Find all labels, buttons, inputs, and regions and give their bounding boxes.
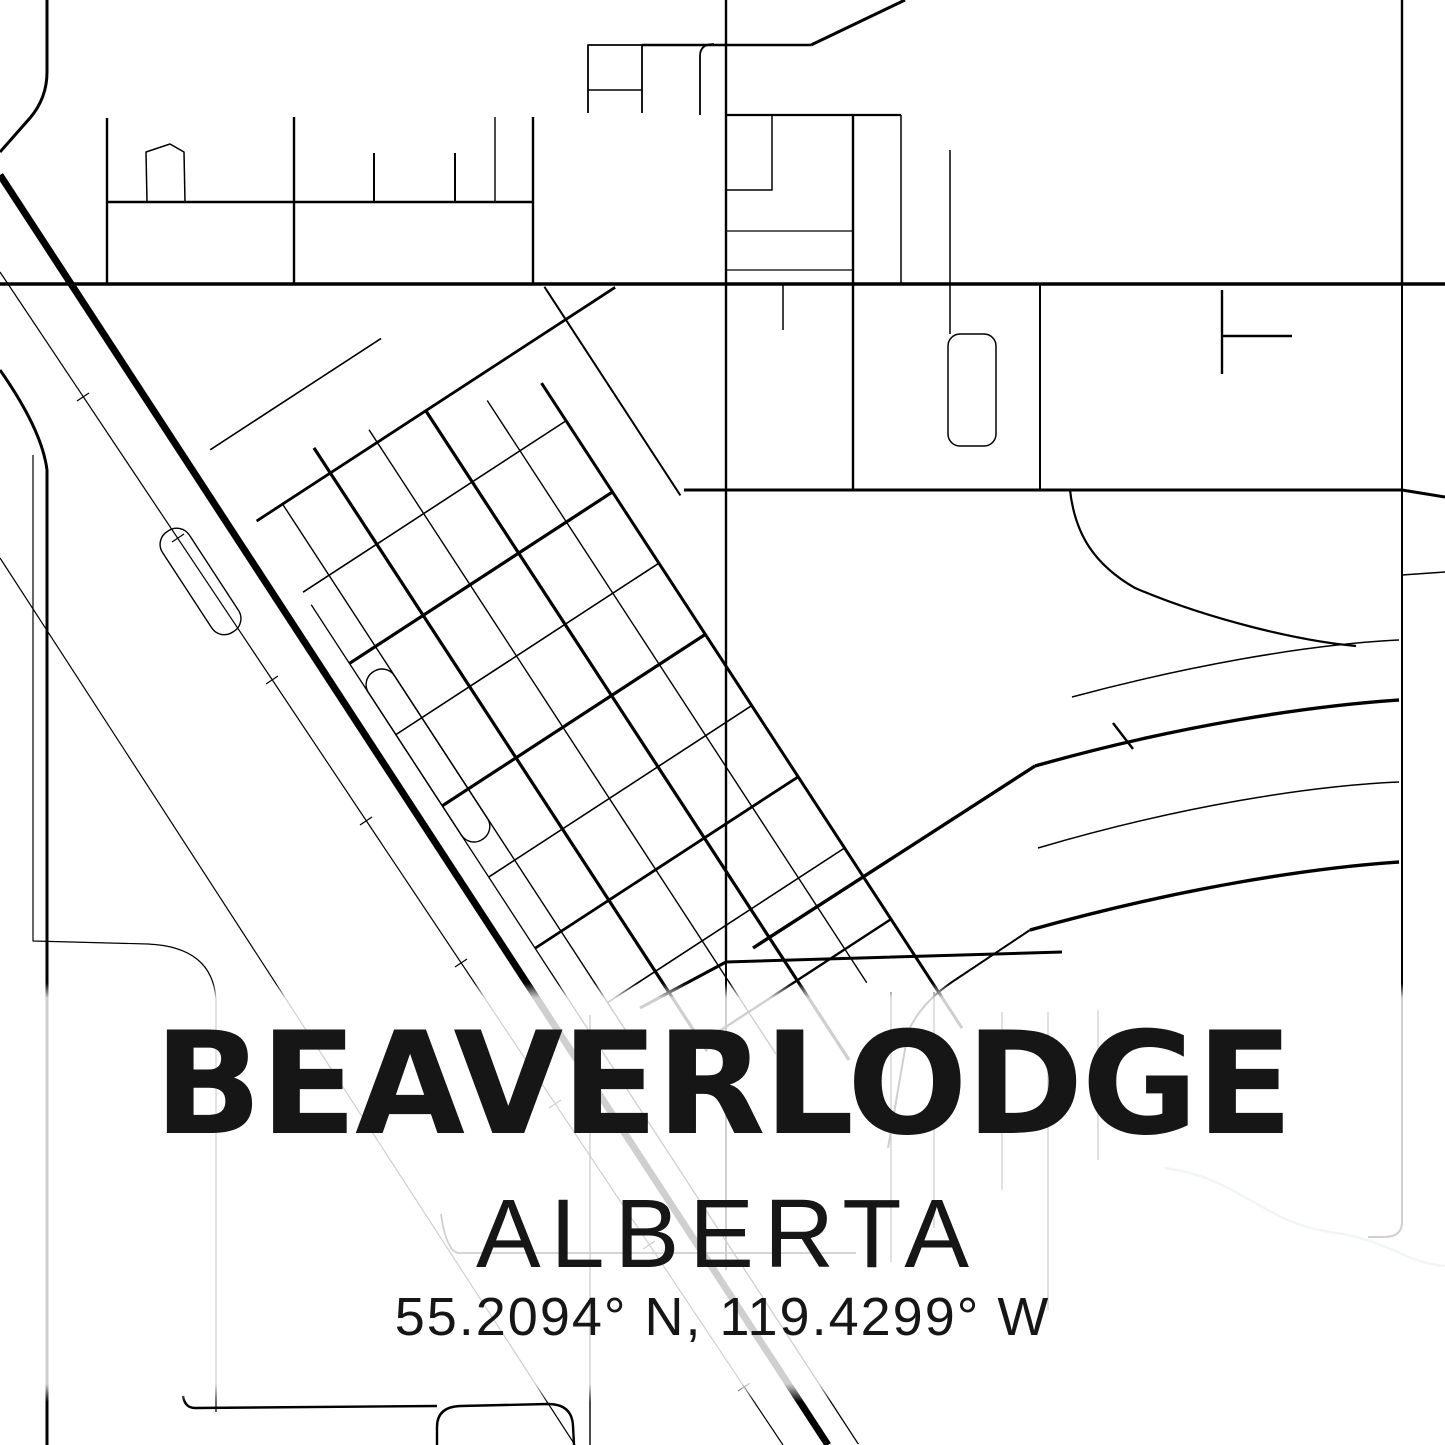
poster-subtitle: ALBERTA xyxy=(0,1185,1445,1282)
loop-street-west xyxy=(154,522,246,640)
poster-title: BEAVERLODGE xyxy=(0,1014,1445,1156)
northwest-streets xyxy=(0,0,1445,284)
poster-coordinates: 55.2094° N, 119.4299° W xyxy=(0,1290,1445,1344)
west-edge-streets xyxy=(0,370,216,1445)
map-poster: { "poster": { "title": "BEAVERLODGE", "s… xyxy=(0,0,1445,1445)
